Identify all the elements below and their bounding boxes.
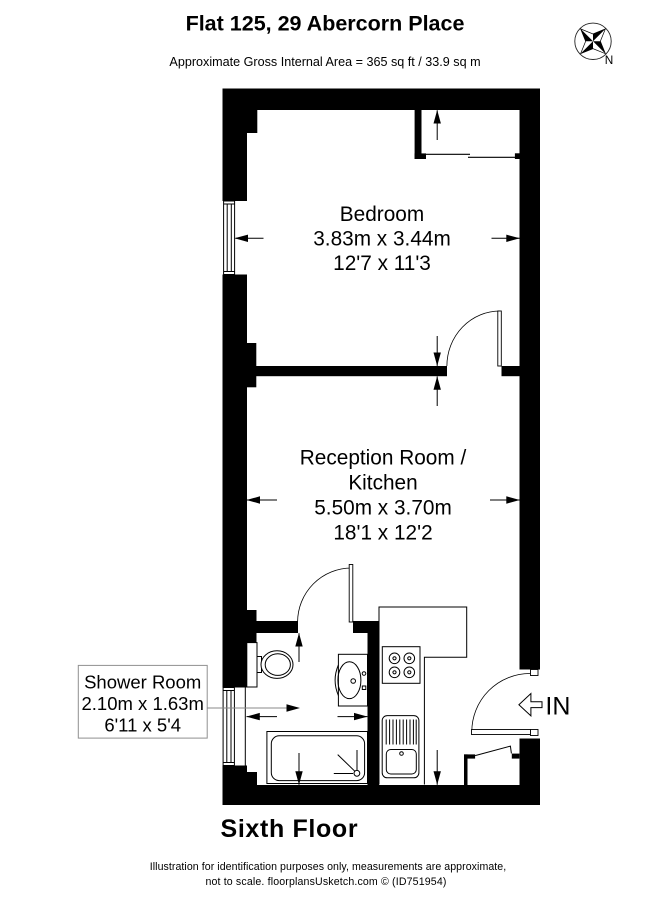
svg-text:18'1 x 12'2: 18'1 x 12'2 <box>333 522 432 545</box>
svg-text:Flat 125, 29 Abercorn Place: Flat 125, 29 Abercorn Place <box>186 11 465 35</box>
svg-text:Illustration for identificatio: Illustration for identification purposes… <box>150 861 507 873</box>
svg-text:not to scale. floorplansUsketc: not to scale. floorplansUsketch.com © (I… <box>205 876 446 888</box>
svg-text:Approximate Gross Internal Are: Approximate Gross Internal Area = 365 sq… <box>169 55 480 69</box>
svg-text:Kitchen: Kitchen <box>348 472 417 495</box>
svg-text:6'11 x 5'4: 6'11 x 5'4 <box>104 715 181 736</box>
svg-text:Sixth Floor: Sixth Floor <box>221 815 359 843</box>
svg-text:Bedroom: Bedroom <box>340 203 424 226</box>
svg-text:3.83m x 3.44m: 3.83m x 3.44m <box>313 227 451 250</box>
svg-text:Shower Room: Shower Room <box>84 672 201 693</box>
svg-text:2.10m x 1.63m: 2.10m x 1.63m <box>82 693 204 714</box>
svg-text:Reception Room /: Reception Room / <box>300 447 467 470</box>
svg-text:IN: IN <box>545 692 570 720</box>
svg-text:12'7 x 11'3: 12'7 x 11'3 <box>333 252 431 275</box>
svg-text:N: N <box>605 53 614 67</box>
svg-text:5.50m x 3.70m: 5.50m x 3.70m <box>314 497 452 520</box>
